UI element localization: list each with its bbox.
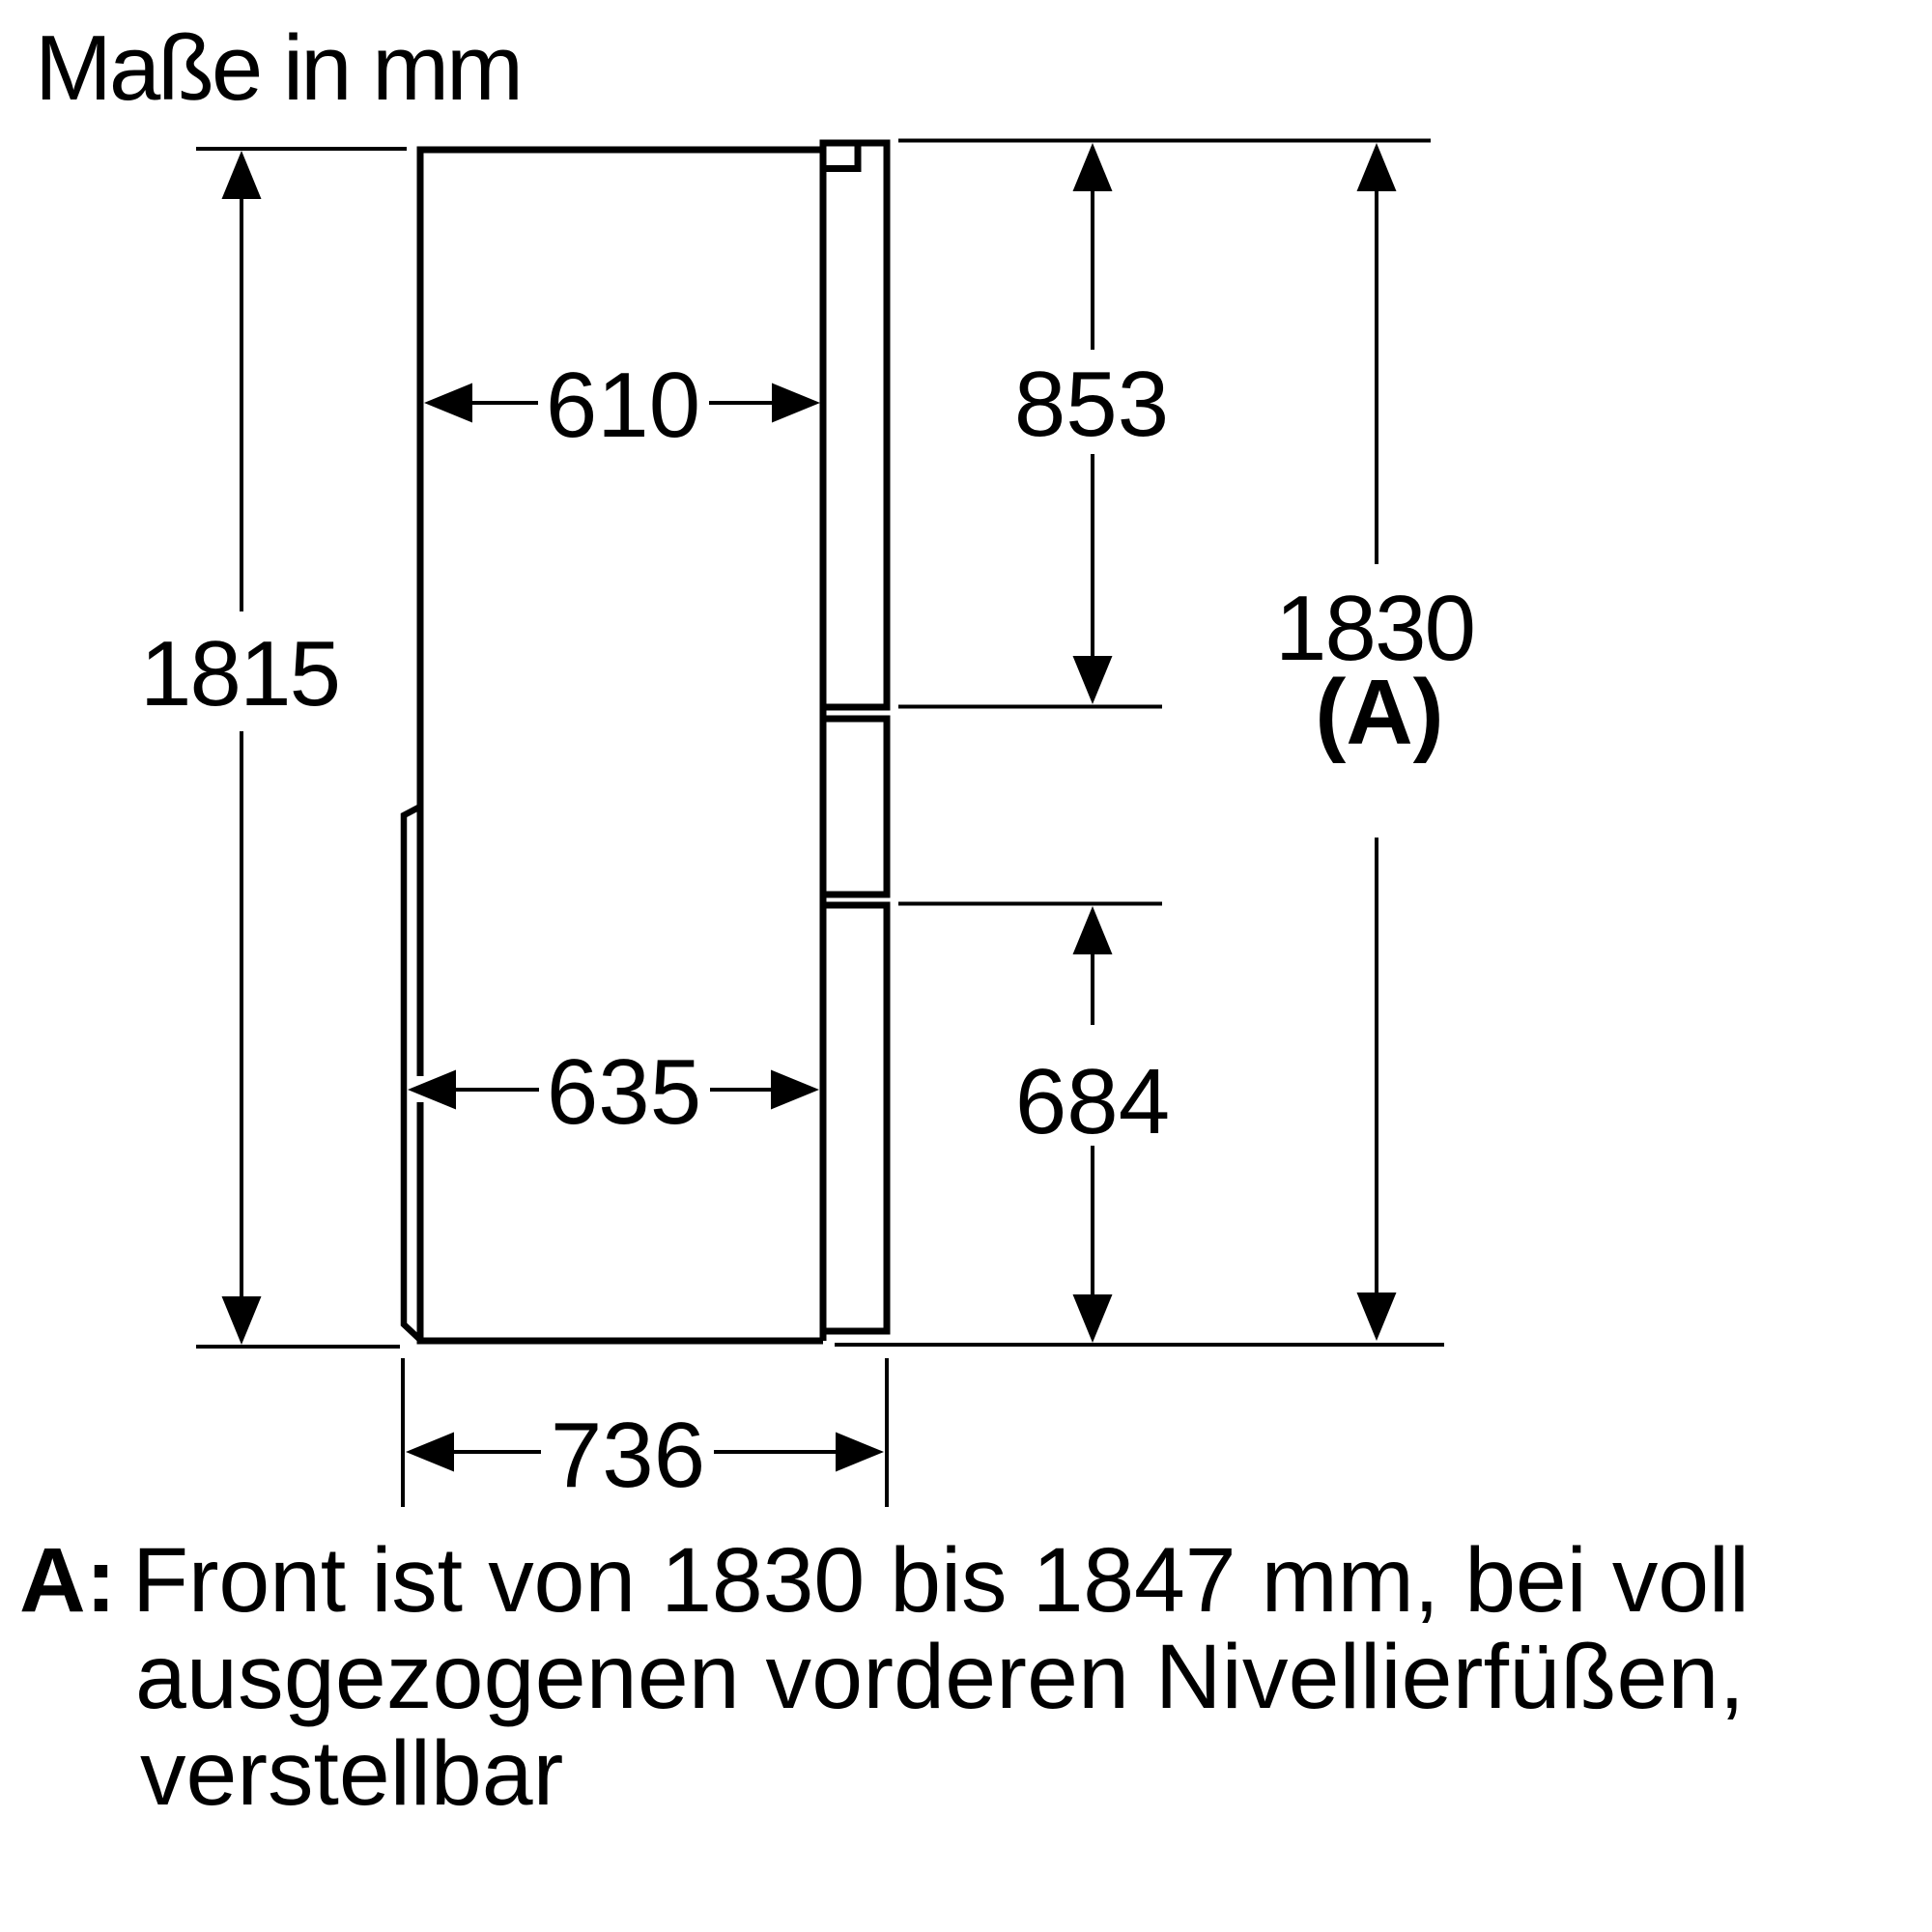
svg-text:736: 736	[551, 1404, 705, 1507]
svg-text:A:: A:	[19, 1529, 116, 1632]
svg-text:684: 684	[1015, 1050, 1170, 1153]
svg-text:(A): (A)	[1315, 661, 1443, 764]
svg-text:Maße in mm: Maße in mm	[35, 16, 524, 120]
svg-text:853: 853	[1014, 353, 1169, 456]
svg-text:Front ist von 1830 bis 1847 mm: Front ist von 1830 bis 1847 mm, bei voll	[132, 1529, 1749, 1632]
svg-text:ausgezogenen vorderen Nivellie: ausgezogenen vorderen Nivellierfüßen,	[135, 1626, 1745, 1728]
svg-text:610: 610	[546, 354, 700, 457]
svg-text:1815: 1815	[140, 622, 341, 725]
svg-text:verstellbar: verstellbar	[140, 1722, 563, 1825]
svg-text:635: 635	[547, 1040, 701, 1144]
